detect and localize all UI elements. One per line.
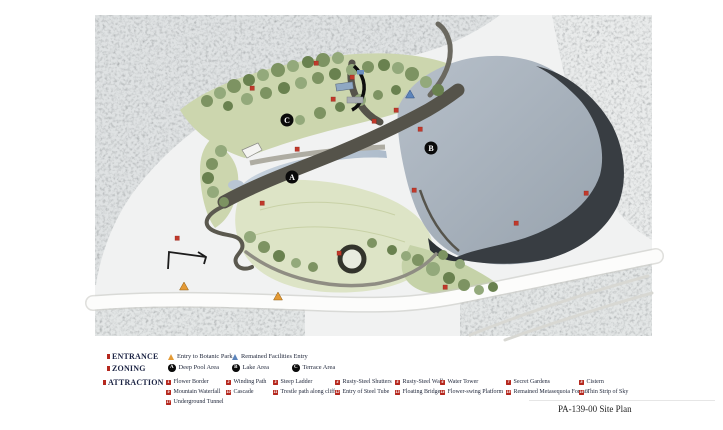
red-number-badge: 1: [166, 380, 171, 385]
sheet-title: PA-139-00 Site Plan: [558, 404, 632, 414]
red-number-badge: 6: [440, 380, 445, 385]
legend-zoning-row: A Deep Pool Area B Lake Area C Terrace A…: [168, 364, 335, 372]
zone-label-A: A: [289, 173, 295, 182]
legend-attraction-item: 1Flower Border: [166, 379, 226, 385]
legend-attraction-item: 4Rusty-Steel Shutters: [335, 379, 395, 385]
legend-attraction-item: 9Mountain Waterfall: [166, 389, 226, 395]
legend-attraction-item: 14Flower-swing Platform: [440, 389, 506, 395]
legend-attraction-row-2: 9Mountain Waterfall 10Cascade 11Trestle …: [166, 387, 639, 397]
red-number-badge: 4: [335, 380, 340, 385]
legend-entrance-row: Entry to Botanic Park Remained Facilitie…: [168, 353, 308, 360]
sheet-divider-line: [529, 400, 715, 401]
legend-item-zone-b: B Lake Area: [232, 364, 292, 372]
cistern-ring: [340, 247, 364, 271]
red-number-badge: 10: [226, 390, 231, 395]
legend-attraction-item: 17Underground Tunnel: [166, 399, 226, 405]
zone-c-circle-icon: C: [292, 364, 300, 372]
legend-attraction-item: 12Entry of Steel Tube: [335, 389, 395, 395]
red-number-badge: 5: [395, 380, 400, 385]
legend-attraction-item: 8Cistern: [579, 379, 639, 385]
legend-attraction-row-1: 1Flower Border 2Winding Path 3Steep Ladd…: [166, 377, 639, 387]
legend-item-facility-entry: Remained Facilities Entry: [232, 353, 308, 360]
legend-attraction-item: 2Winding Path: [226, 379, 273, 385]
legend-attraction-row-3: 17Underground Tunnel: [166, 397, 226, 407]
legend-attraction-item: 10Cascade: [226, 389, 273, 395]
facility-marker: [357, 70, 364, 75]
red-number-badge: 14: [440, 390, 445, 395]
red-number-badge: 12: [335, 390, 340, 395]
red-number-badge: 9: [166, 390, 171, 395]
legend-bullet: [103, 380, 106, 385]
red-number-badge: 8: [579, 380, 584, 385]
red-number-badge: 13: [395, 390, 400, 395]
legend-item-park-entry: Entry to Botanic Park: [168, 353, 232, 360]
legend-attraction-item: 11Trestle path along cliff: [273, 389, 335, 395]
legend-attraction-item: 15Remained Metasequoia Forests: [506, 389, 579, 395]
legend-bullet: [107, 366, 110, 371]
red-number-badge: 7: [506, 380, 511, 385]
legend-attraction-item: 16Thin Strip of Sky: [579, 389, 639, 395]
red-number-badge: 2: [226, 380, 231, 385]
legend-header-entrance: ENTRANCE: [107, 352, 159, 361]
legend-header-zoning: ZONING: [107, 364, 146, 373]
site-plan-sheet: A B C ENTRANCE Entry to Botanic Park Rem…: [0, 0, 723, 430]
zone-a-circle-icon: A: [168, 364, 176, 372]
red-number-badge: 17: [166, 400, 171, 405]
red-number-badge: 3: [273, 380, 278, 385]
legend-attraction-item: 13Floating Bridge: [395, 389, 440, 395]
zone-b-circle-icon: B: [232, 364, 240, 372]
red-number-badge: 11: [273, 390, 278, 395]
legend-attraction-item: 6Water Tower: [440, 379, 506, 385]
legend-bullet: [107, 354, 110, 359]
legend-attraction-item: 3Steep Ladder: [273, 379, 335, 385]
legend-attraction-item: 7Secret Gardens: [506, 379, 579, 385]
legend-header-attraction: ATTRACTION: [103, 378, 164, 387]
blue-triangle-icon: [232, 354, 238, 360]
zone-label-B: B: [428, 144, 434, 153]
legend-item-zone-a: A Deep Pool Area: [168, 364, 232, 372]
orange-triangle-icon: [168, 354, 174, 360]
legend-item-zone-c: C Terrace Area: [292, 364, 335, 372]
red-number-badge: 15: [506, 390, 511, 395]
zone-label-C: C: [284, 116, 290, 125]
red-number-badge: 16: [579, 390, 584, 395]
legend-attraction-item: 5Rusty-Steel Wall: [395, 379, 440, 385]
